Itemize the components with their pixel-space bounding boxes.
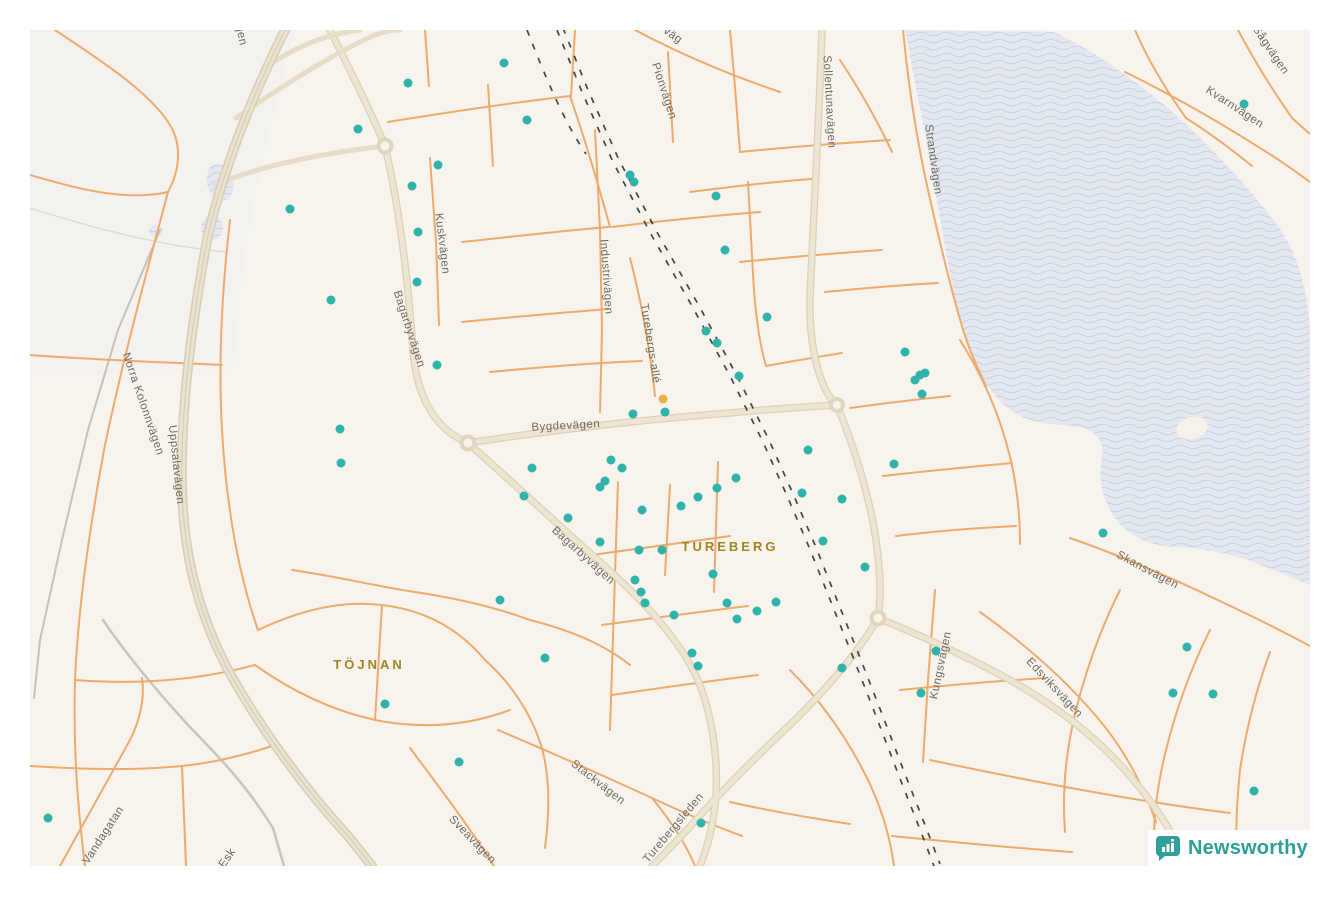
data-point-dot[interactable] [286,205,295,214]
data-point-dot[interactable] [1169,689,1178,698]
data-point-dot[interactable] [763,313,772,322]
data-point-dot[interactable] [596,538,605,547]
data-point-dot[interactable] [638,506,647,515]
data-point-dot[interactable] [772,598,781,607]
data-point-dot[interactable] [688,649,697,658]
data-point-dot[interactable] [408,182,417,191]
data-point-dot[interactable] [804,446,813,455]
data-point-dot[interactable] [918,390,927,399]
data-point-dot[interactable] [381,700,390,709]
data-point-dot[interactable] [1183,643,1192,652]
data-point-dot[interactable] [641,599,650,608]
data-point-dot[interactable] [819,537,828,546]
map-canvas[interactable]: BygdevägenBagarbyvägenBagarbyvägenUppsal… [30,30,1310,866]
data-point-dot[interactable] [735,372,744,381]
data-point-dot[interactable] [1250,787,1259,796]
data-point-dot[interactable] [528,464,537,473]
data-point-dot[interactable] [520,492,529,501]
data-point-dot[interactable] [523,116,532,125]
data-point-dot[interactable] [44,814,53,823]
data-point-dot[interactable] [702,327,711,336]
data-point-dot[interactable] [658,546,667,555]
data-point-dot[interactable] [670,611,679,620]
data-point-dot[interactable] [434,161,443,170]
data-point-dot-highlight[interactable] [659,395,668,404]
data-point-dot[interactable] [901,348,910,357]
map-svg: BygdevägenBagarbyvägenBagarbyvägenUppsal… [30,30,1310,866]
data-point-dot[interactable] [732,474,741,483]
data-point-dot[interactable] [354,125,363,134]
data-point-dot[interactable] [1099,529,1108,538]
data-point-dot[interactable] [433,361,442,370]
data-point-dot[interactable] [601,477,610,486]
data-point-dot[interactable] [337,459,346,468]
data-point-dot[interactable] [921,369,930,378]
data-point-dot[interactable] [564,514,573,523]
data-point-dot[interactable] [327,296,336,305]
data-point-dot[interactable] [838,664,847,673]
data-point-dot[interactable] [635,546,644,555]
data-point-dot[interactable] [694,493,703,502]
area-label: TÖJNAN [333,657,404,672]
data-point-dot[interactable] [733,615,742,624]
data-point-dot[interactable] [630,178,639,187]
data-point-dot[interactable] [917,689,926,698]
data-point-dot[interactable] [404,79,413,88]
data-point-dot[interactable] [723,599,732,608]
data-point-dot[interactable] [607,456,616,465]
data-point-dot[interactable] [661,408,670,417]
data-point-dot[interactable] [861,563,870,572]
data-point-dot[interactable] [629,410,638,419]
data-point-dot[interactable] [455,758,464,767]
data-point-dot[interactable] [697,819,706,828]
data-point-dot[interactable] [798,489,807,498]
data-point-dot[interactable] [541,654,550,663]
data-point-dot[interactable] [618,464,627,473]
data-point-dot[interactable] [890,460,899,469]
data-point-dot[interactable] [713,339,722,348]
data-point-dot[interactable] [712,192,721,201]
data-point-dot[interactable] [753,607,762,616]
data-point-dot[interactable] [713,484,722,493]
data-point-dot[interactable] [721,246,730,255]
data-point-dot[interactable] [500,59,509,68]
data-point-dot[interactable] [709,570,718,579]
newsworthy-wordmark: Newsworthy [1188,837,1308,860]
attribution: Newsworthy [1148,830,1310,866]
data-point-dot[interactable] [336,425,345,434]
data-point-dot[interactable] [413,278,422,287]
data-point-dot[interactable] [838,495,847,504]
data-point-dot[interactable] [637,588,646,597]
area-label: TUREBERG [682,539,779,554]
data-point-dot[interactable] [694,662,703,671]
data-point-dot[interactable] [414,228,423,237]
data-point-dot[interactable] [631,576,640,585]
newsworthy-logo-icon [1155,835,1181,861]
data-point-dot[interactable] [677,502,686,511]
data-point-dot[interactable] [496,596,505,605]
data-point-dot[interactable] [1209,690,1218,699]
